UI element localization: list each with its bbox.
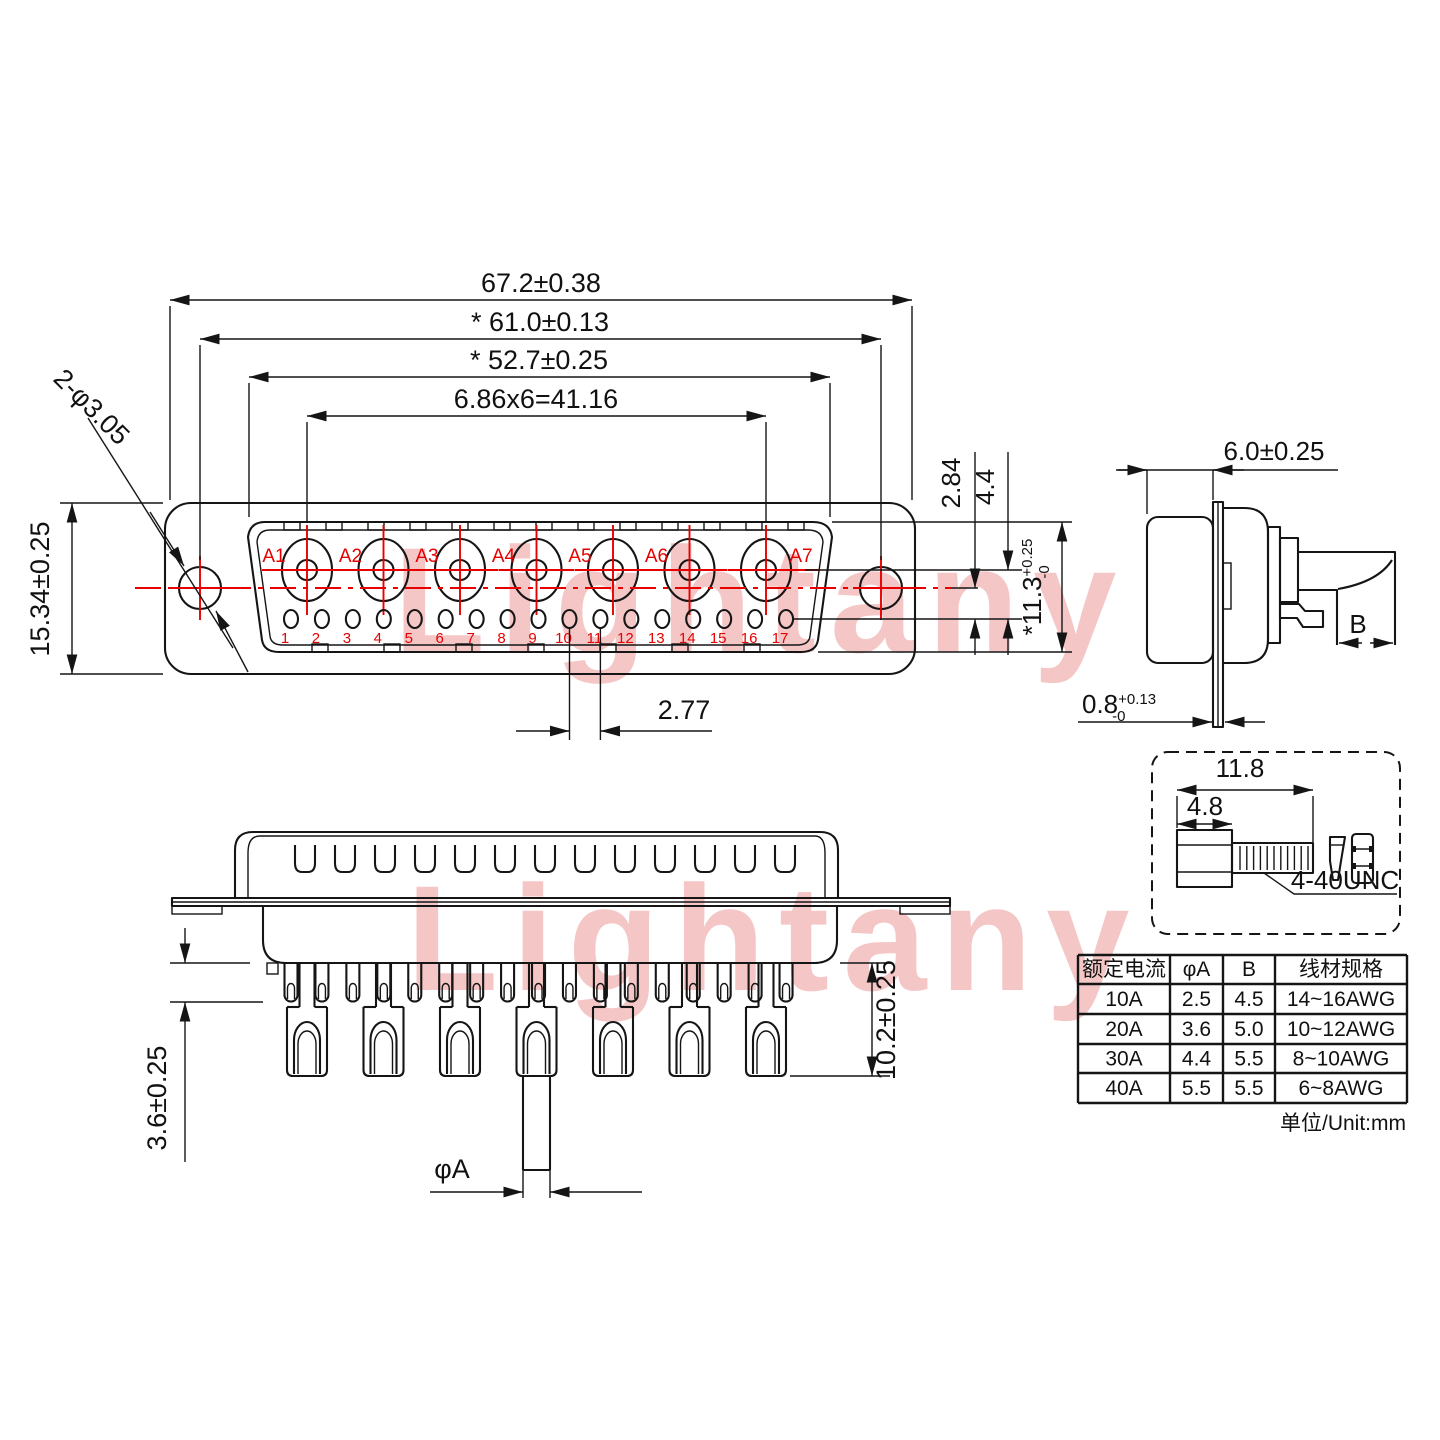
table-cell: 5.5 [1182,1077,1211,1100]
dim-pin-diameter: φA [434,1154,470,1184]
shell-tick-top [326,522,342,530]
cap-slot [375,845,395,872]
table-cell: 5.5 [1234,1077,1263,1100]
shell-tick-top [368,522,384,530]
signal-solder-cup-hole [349,984,356,1000]
table-header-cell: 额定电流 [1082,958,1166,981]
table-cell: 4.5 [1234,988,1263,1011]
pin-label: A3 [415,546,438,567]
dim-insulator-gap: 3.6±0.25 [142,1046,172,1151]
table-header-cell: φA [1183,958,1211,981]
table-cell: 10~12AWG [1287,1018,1395,1041]
pin-number: 9 [528,630,536,647]
watermark-text-bottom: Lightany [407,854,1144,1022]
side-depth-dimension: 6.0±0.25 [1116,436,1338,514]
signal-contact [284,610,298,628]
table-cell: 2.5 [1182,988,1211,1011]
pin-number: 15 [710,630,727,647]
unit-note: 单位/Unit:mm [1280,1112,1406,1135]
signal-solder-tube [377,963,390,1002]
screw-head [1177,830,1232,887]
dim-hole-callout: 2-φ3.05 [48,363,136,451]
solder-insulator-dimension: 3.6±0.25 [142,928,263,1162]
side-strain-tab [1280,604,1323,627]
pin-number: 16 [741,630,758,647]
side-backshell [1223,508,1268,663]
table-cell: 14~16AWG [1287,988,1395,1011]
pin-number: 8 [497,630,505,647]
table-cell: 30A [1105,1048,1142,1071]
signal-solder-tube [315,963,328,1002]
pin-number: 13 [648,630,665,647]
pin-label: A2 [339,546,362,567]
table-cell: 40A [1105,1077,1142,1100]
power-cup-arch-inner [757,1031,775,1074]
signal-solder-cup-hole [380,984,387,1000]
pin-label: A4 [492,546,516,567]
dim-small-pin-pitch: 2.77 [658,695,711,725]
pin-number: 1 [281,630,289,647]
table-cell: 4.4 [1182,1048,1212,1071]
pin-number: 6 [436,630,444,647]
table-cell: 8~10AWG [1293,1048,1390,1071]
side-step2 [1280,538,1298,602]
side-wire-dimension: B [1339,609,1393,643]
pin-label: A7 [789,546,812,567]
dim-center-to-row: 2.84 [936,458,966,509]
table-cell: 5.0 [1234,1018,1263,1041]
power-cup-arch-inner [681,1031,699,1074]
power-cup-arch-inner [298,1031,316,1074]
solder-notch [267,963,278,974]
table-cell: 20A [1105,1018,1142,1041]
shell-tick-top [284,522,300,530]
screw-detail: 11.8 4.8 4-40UNC [1152,752,1400,934]
signal-solder-tube [346,963,359,1002]
pin-label: A1 [262,546,285,567]
dim-wire-width: B [1349,609,1366,639]
power-cup-arch-inner [451,1031,469,1074]
power-cup-arch-inner [604,1031,622,1074]
dim-screw-total: 11.8 [1216,753,1265,783]
signal-contact [315,610,329,628]
pin-label: A6 [645,546,668,567]
connector-drawing-svg: Lightany Lightany A1A2A3A4A5A6A7 1234567… [0,0,1440,1440]
dim-row-gap: 4.4 [970,469,1000,505]
table-cell: 10A [1105,988,1142,1011]
dim-screw-head: 4.8 [1187,791,1223,821]
pin-number: 7 [466,630,474,647]
table-cell: 6~8AWG [1298,1077,1383,1100]
signal-solder-cup-hole [318,984,325,1000]
dim-mount-span: * 61.0±0.13 [471,307,609,337]
dim-flange-height: 15.34±0.25 [25,522,55,657]
table-cell: 3.6 [1182,1018,1211,1041]
dim-plate-thickness: 0.8+0.13-0 [1082,689,1156,725]
pin-number: 14 [679,630,696,647]
solder-foot-left [172,906,222,914]
pin-number: 12 [617,630,634,647]
side-step1 [1268,527,1280,643]
pin-number: 3 [343,630,351,647]
power-cup-arch-inner [528,1031,546,1074]
solder-pin-dia-dimension: φA [430,1154,642,1198]
table-cell: 5.5 [1234,1048,1263,1071]
side-plate-dimension: 0.8+0.13-0 [1078,689,1265,725]
front-left-dimensions: 15.34±0.25 2-φ3.05 [25,363,248,674]
power-cup-arch-inner [375,1031,393,1074]
pin-number: 17 [772,630,789,647]
cap-slot [335,845,355,872]
side-wire [1298,552,1395,645]
side-cap [1147,517,1213,663]
signal-solder-tube [285,963,298,1002]
dim-pin-pitch-total: 6.86x6=41.16 [454,384,618,414]
dim-cup-length: 10.2±0.25 [871,960,901,1080]
spec-table-text: 额定电流φAB线材规格10A2.54.514~16AWG20A3.65.010~… [1082,958,1395,1100]
signal-contact [346,610,360,628]
cap-slot [295,845,315,872]
side-key [1223,563,1231,609]
pin-number: 2 [312,630,320,647]
dim-overall-width: 67.2±0.38 [481,268,601,298]
thread-label: 4-40UNC [1291,865,1399,895]
pin-label: A5 [568,546,591,567]
engineering-drawing-page: Lightany Lightany A1A2A3A4A5A6A7 1234567… [0,0,1440,1440]
pin-number: 4 [374,630,382,647]
dim-depth: 6.0±0.25 [1223,436,1324,466]
table-header-cell: B [1242,958,1256,981]
dim-shell-width: * 52.7±0.25 [470,345,608,375]
signal-solder-cup-hole [288,984,295,1000]
table-header-cell: 线材规格 [1299,958,1383,981]
pin-number: 5 [405,630,413,647]
